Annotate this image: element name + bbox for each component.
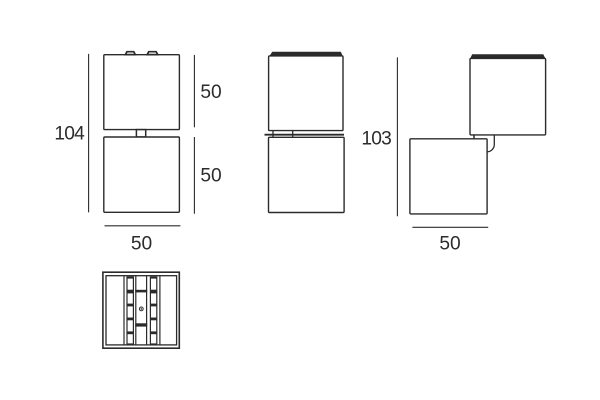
svg-text:50: 50 — [439, 233, 460, 254]
svg-text:103: 103 — [361, 129, 391, 150]
svg-text:50: 50 — [200, 166, 221, 187]
svg-text:50: 50 — [200, 82, 221, 103]
svg-text:50: 50 — [131, 234, 152, 255]
svg-text:104: 104 — [54, 124, 85, 145]
